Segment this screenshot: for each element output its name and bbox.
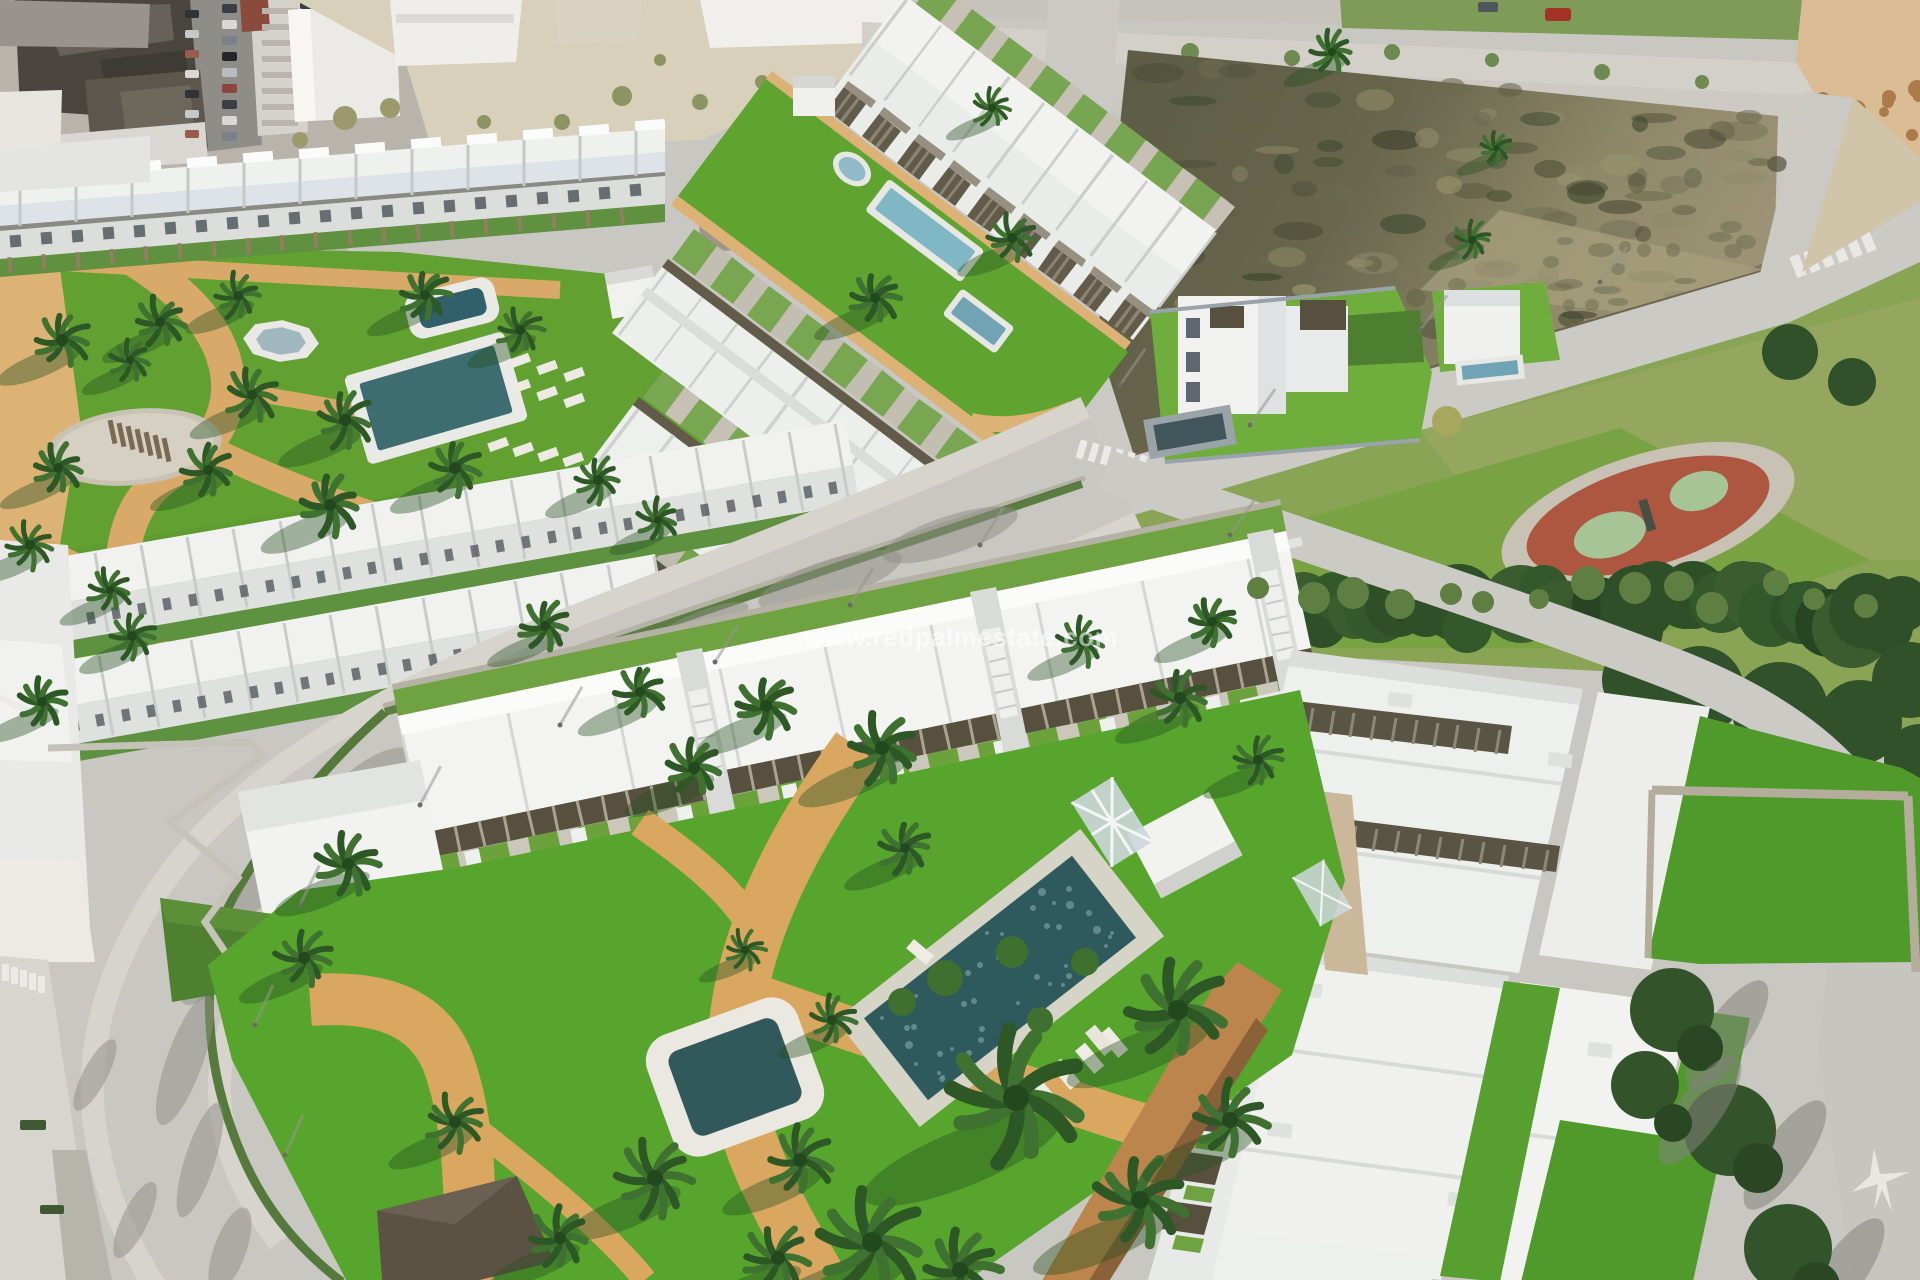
svg-text:www.redpalmestate.com: www.redpalmestate.com xyxy=(803,622,1118,652)
